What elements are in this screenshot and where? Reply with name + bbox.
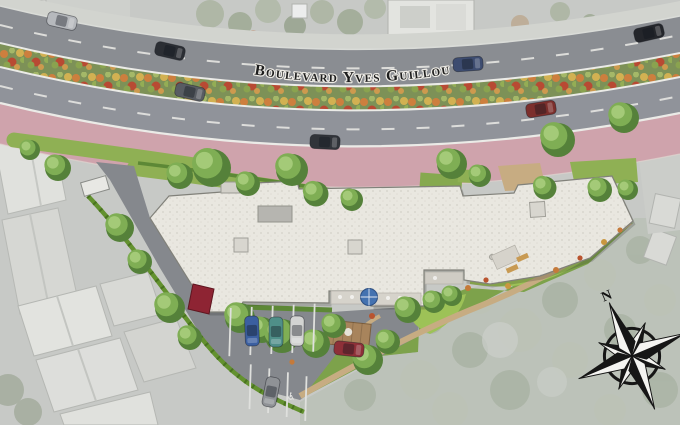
- entrance-canopy: [188, 284, 214, 314]
- road-car: [310, 134, 341, 150]
- handicap-space-icon: ♿: [286, 391, 297, 403]
- entrance-recess: [258, 206, 292, 222]
- road-car: [453, 56, 484, 72]
- parked-car: [290, 316, 305, 346]
- parasol: [361, 289, 378, 306]
- roof-skylight: [348, 240, 362, 254]
- roof-skylight: [530, 201, 546, 217]
- site-plan: ♿ Boulevard Yves Guillou N: [0, 0, 680, 425]
- plaza-kiosk-roof: [292, 4, 307, 18]
- parked-car-red: [333, 340, 364, 357]
- parked-car: [269, 317, 283, 347]
- roof-skylight: [234, 238, 248, 252]
- top-plaza-building: [388, 0, 474, 36]
- parked-car: [244, 316, 259, 346]
